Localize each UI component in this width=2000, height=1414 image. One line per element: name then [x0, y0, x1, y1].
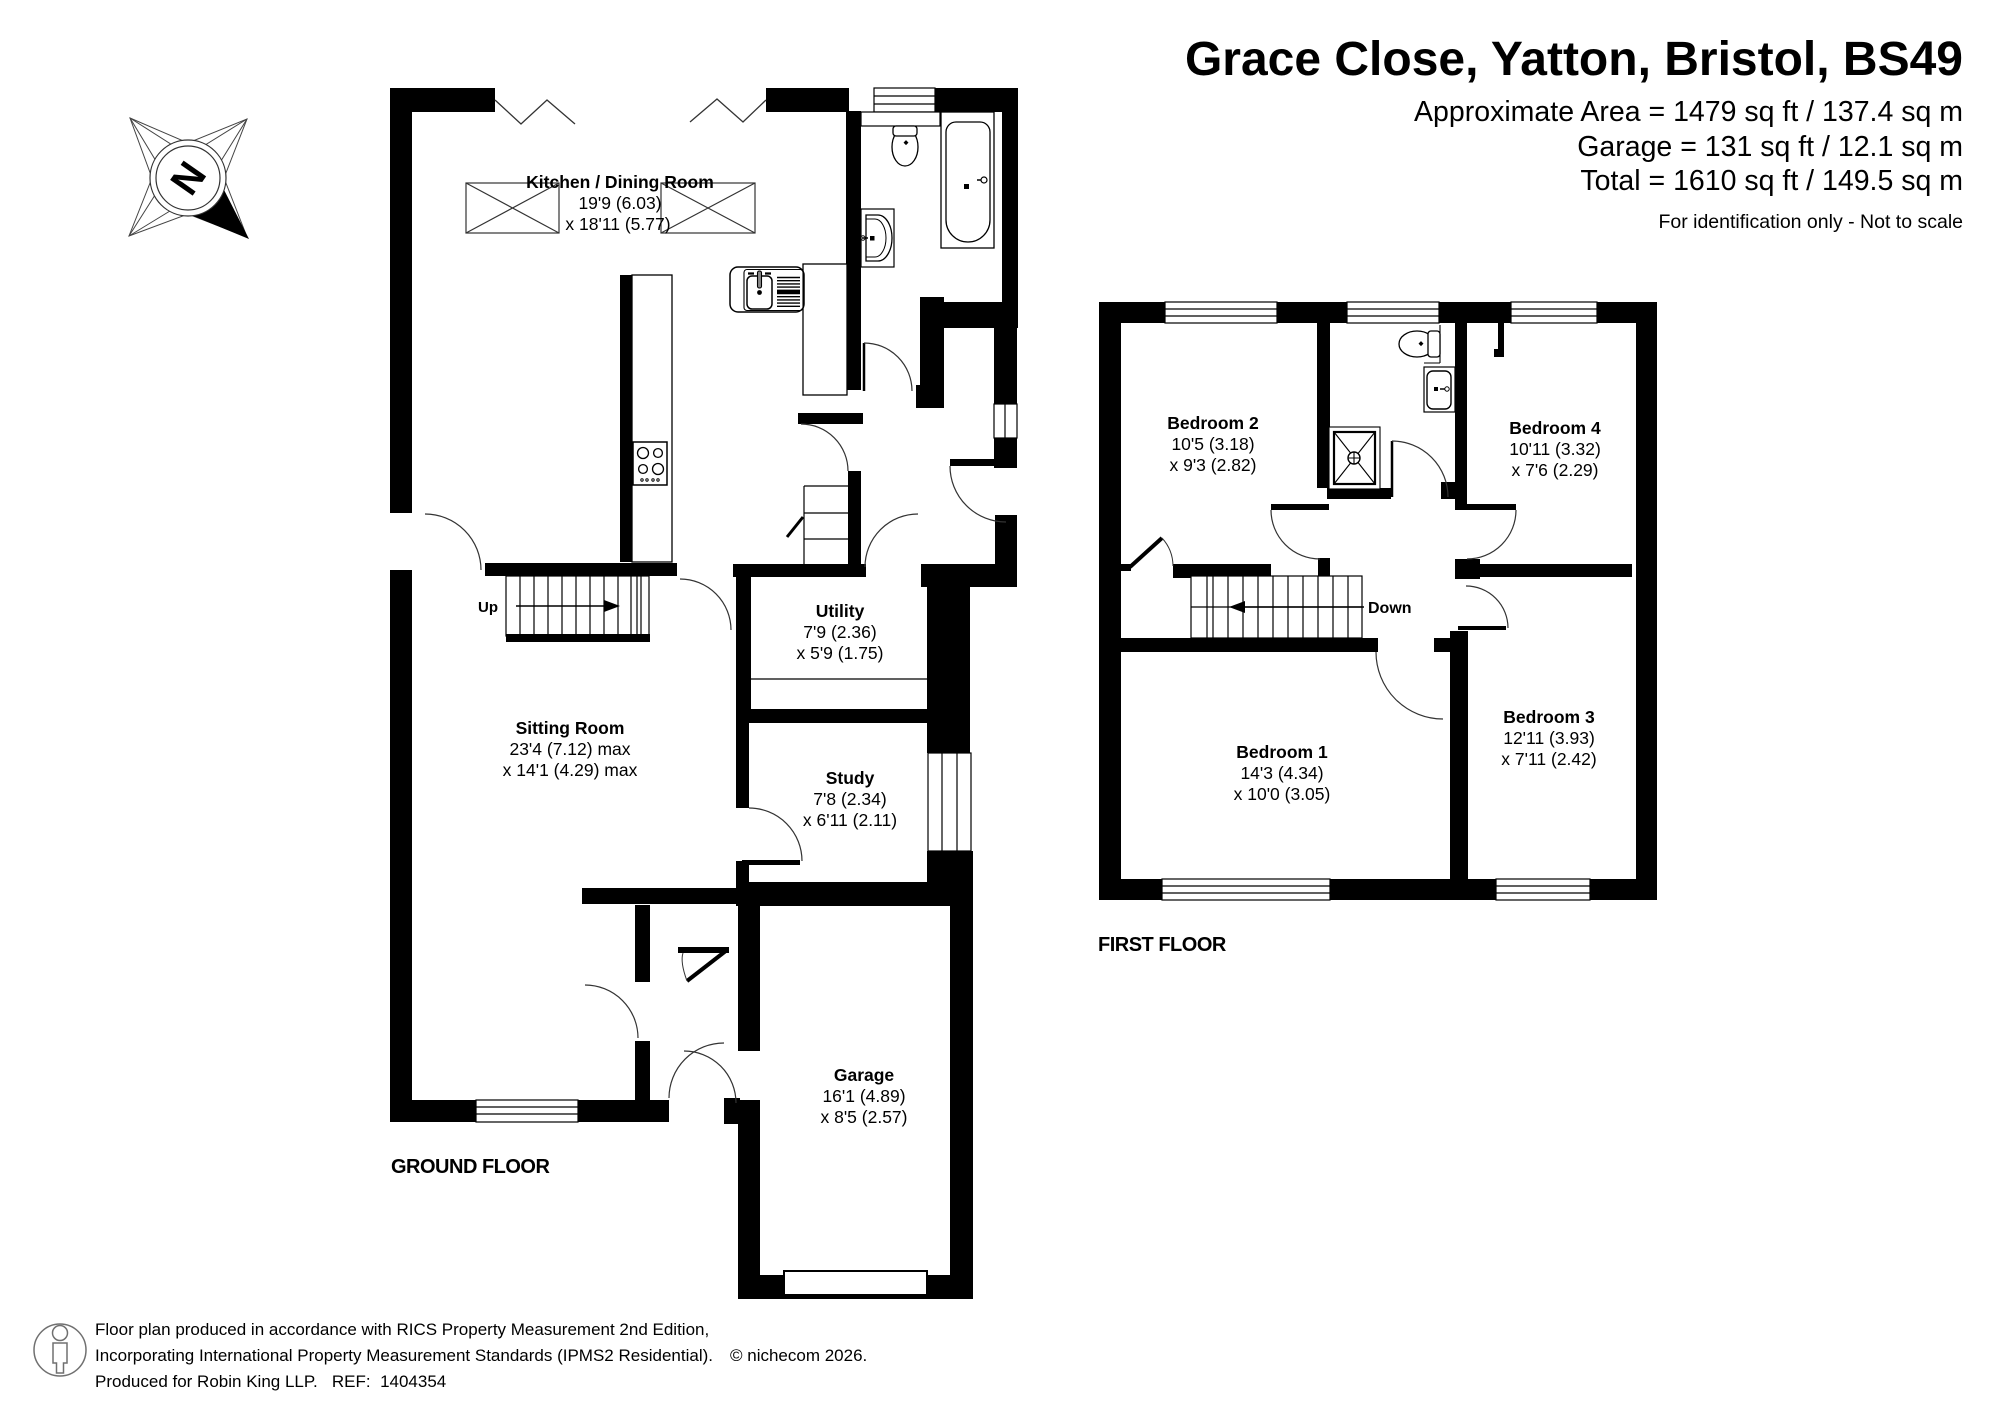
svg-text:Total = 1610 sq ft / 149.5 sq: Total = 1610 sq ft / 149.5 sq m	[1580, 165, 1963, 197]
svg-text:14'3 (4.34): 14'3 (4.34)	[1240, 763, 1323, 783]
svg-text:Grace Close, Yatton, Bristol,: Grace Close, Yatton, Bristol, BS49	[1185, 33, 1963, 86]
svg-text:© nichecom 2026.: © nichecom 2026.	[730, 1346, 867, 1365]
svg-text:x 9'3 (2.82): x 9'3 (2.82)	[1170, 455, 1257, 475]
svg-text:FIRST FLOOR: FIRST FLOOR	[1098, 934, 1227, 956]
svg-text:x 5'9 (1.75): x 5'9 (1.75)	[797, 643, 884, 663]
svg-text:7'9 (2.36): 7'9 (2.36)	[803, 622, 876, 642]
svg-text:Floor plan produced in accorda: Floor plan produced in accordance with R…	[95, 1320, 709, 1339]
svg-text:Garage = 131 sq ft / 12.1 sq m: Garage = 131 sq ft / 12.1 sq m	[1577, 131, 1963, 163]
svg-text:x 7'6 (2.29): x 7'6 (2.29)	[1512, 460, 1599, 480]
svg-text:Bedroom 4: Bedroom 4	[1509, 418, 1601, 438]
svg-text:x 8'5 (2.57): x 8'5 (2.57)	[821, 1107, 908, 1127]
svg-text:x 7'11 (2.42): x 7'11 (2.42)	[1501, 749, 1596, 769]
svg-text:Bedroom 1: Bedroom 1	[1236, 742, 1328, 762]
svg-text:Bedroom 3: Bedroom 3	[1503, 707, 1595, 727]
svg-text:x 10'0 (3.05): x 10'0 (3.05)	[1234, 784, 1331, 804]
svg-text:Produced for Robin King LLP.: Produced for Robin King LLP. REF: 140435…	[95, 1372, 446, 1391]
svg-text:GROUND FLOOR: GROUND FLOOR	[391, 1156, 550, 1178]
svg-text:Bedroom 2: Bedroom 2	[1167, 413, 1259, 433]
svg-text:Up: Up	[478, 599, 498, 616]
svg-text:x 18'11 (5.77): x 18'11 (5.77)	[565, 214, 670, 234]
svg-text:Down: Down	[1368, 600, 1412, 617]
svg-text:Approximate Area = 1479 sq ft: Approximate Area = 1479 sq ft / 137.4 sq…	[1414, 96, 1963, 128]
svg-text:Sitting Room: Sitting Room	[516, 718, 625, 738]
svg-text:19'9 (6.03): 19'9 (6.03)	[578, 193, 661, 213]
svg-text:23'4 (7.12) max: 23'4 (7.12) max	[509, 739, 630, 759]
svg-text:Garage: Garage	[834, 1065, 895, 1085]
svg-text:16'1 (4.89): 16'1 (4.89)	[822, 1086, 905, 1106]
svg-text:x 6'11 (2.11): x 6'11 (2.11)	[803, 810, 897, 830]
svg-text:Study: Study	[826, 768, 875, 788]
svg-text:Incorporating International Pr: Incorporating International Property Mea…	[95, 1346, 713, 1365]
svg-text:Kitchen / Dining Room: Kitchen / Dining Room	[526, 172, 714, 192]
svg-text:Utility: Utility	[816, 601, 865, 621]
svg-text:10'11 (3.32): 10'11 (3.32)	[1509, 439, 1601, 459]
svg-text:7'8 (2.34): 7'8 (2.34)	[813, 789, 886, 809]
svg-text:12'11 (3.93): 12'11 (3.93)	[1503, 728, 1595, 748]
svg-text:For identification only - Not: For identification only - Not to scale	[1658, 211, 1963, 233]
svg-text:10'5 (3.18): 10'5 (3.18)	[1171, 434, 1254, 454]
svg-text:x 14'1 (4.29) max: x 14'1 (4.29) max	[503, 760, 638, 780]
